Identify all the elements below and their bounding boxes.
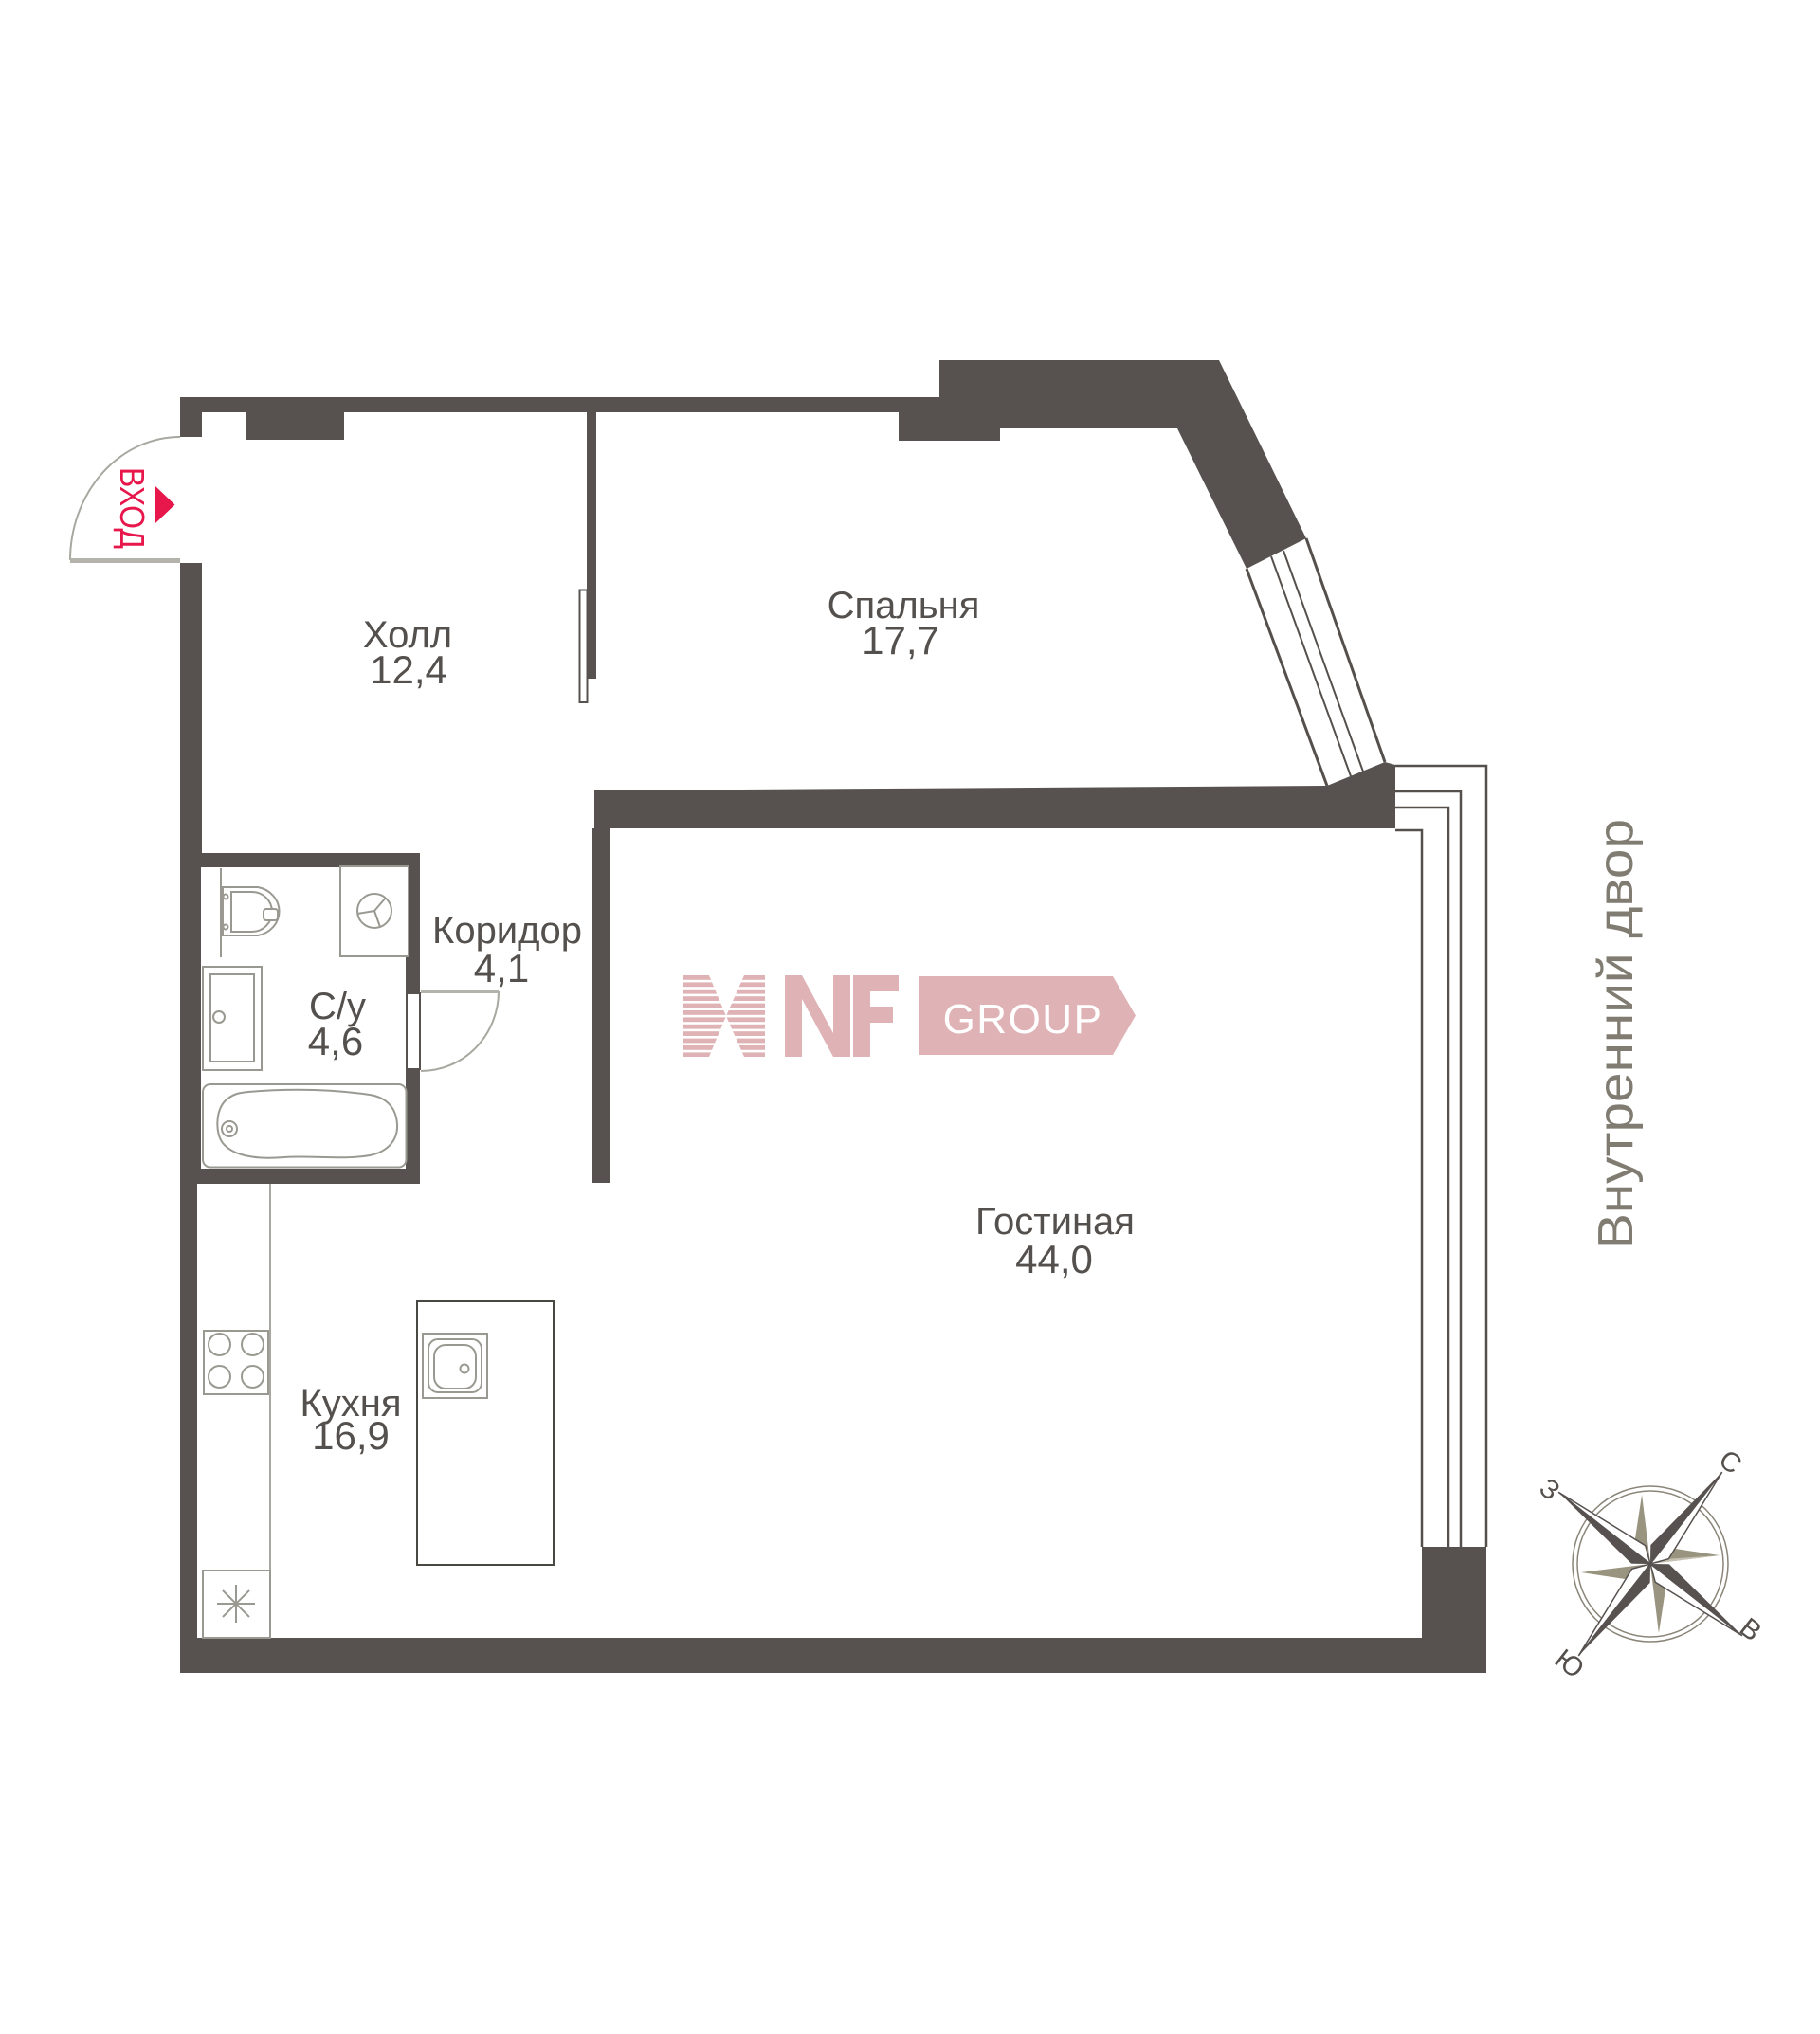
- svg-text:Внутренний двор: Внутренний двор: [1589, 819, 1644, 1249]
- svg-text:GROUP: GROUP: [943, 996, 1103, 1043]
- svg-text:12,4: 12,4: [370, 647, 447, 692]
- svg-text:44,0: 44,0: [1015, 1237, 1093, 1281]
- svg-text:4,6: 4,6: [308, 1019, 363, 1063]
- svg-text:17,7: 17,7: [862, 618, 939, 663]
- svg-text:ВХОД: ВХОД: [113, 467, 152, 549]
- svg-text:4,1: 4,1: [474, 946, 529, 990]
- svg-text:16,9: 16,9: [312, 1413, 390, 1458]
